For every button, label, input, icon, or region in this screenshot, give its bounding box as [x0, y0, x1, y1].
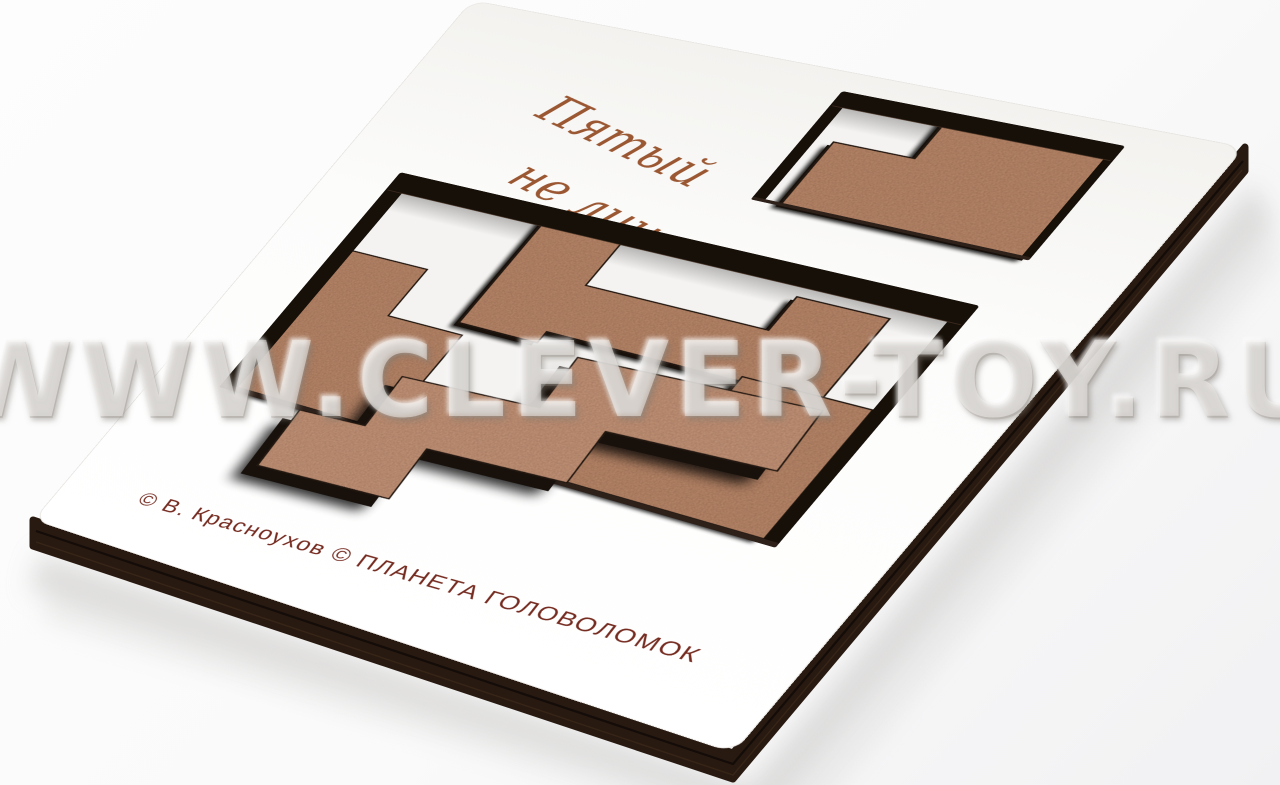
product-photo: Пятый не лишний © В. Красноухов © ПЛАНЕТ… [0, 0, 1280, 785]
